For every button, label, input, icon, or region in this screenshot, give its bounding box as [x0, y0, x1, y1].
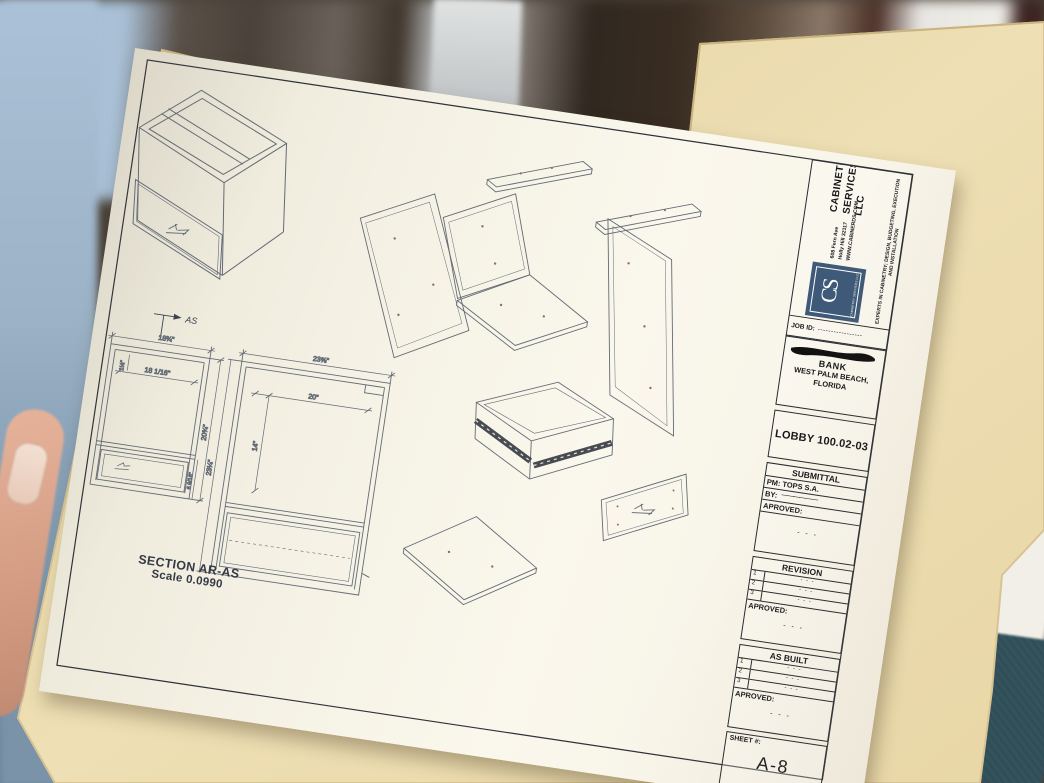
project-box: BANK WEST PALM BEACH, FLORIDA — [775, 335, 886, 419]
exploded-top-rail-1 — [486, 148, 593, 206]
revision-box: REVISION 1 - - - 2 - - - 3 - - - APROVED… — [740, 556, 853, 654]
dim-right-inner-height: 14" — [252, 440, 261, 452]
location-code: LOBBY 100.02-03 — [774, 428, 869, 454]
cs-logo: CS CABINETRY SERVICES LLC — [805, 262, 866, 323]
exploded-drawer-front — [595, 462, 694, 552]
iso-cabinet-view — [119, 82, 302, 287]
job-id-value: ----------------- — [817, 326, 863, 340]
drawer-logo-mark-small — [115, 462, 131, 471]
company-address: 608 Fern Ave Holly Hill 32117 WWW.CABINE… — [828, 216, 859, 261]
submittal-box: SUBMITTAL PM: TOPS S.A. BY: —————— APROV… — [753, 462, 867, 566]
exploded-drawer-box — [466, 371, 621, 491]
as-built-box: AS BUILT 1 - - - 2 - - - 3 - - - APROVED… — [727, 644, 840, 742]
job-id-label: JOB ID: — [791, 322, 816, 332]
submittal-by-label: BY: — [764, 489, 778, 500]
drawer-front-logo-mark — [632, 503, 655, 516]
exploded-deck-panel — [451, 265, 593, 361]
exploded-parts-view — [306, 130, 737, 635]
section-marker-label: AS — [184, 314, 198, 326]
company-name: CABINETRY SERVICES LLC — [829, 159, 875, 217]
dim-left-top-reveal: 1½" — [118, 360, 126, 371]
sheet-number-value: A-8 — [725, 748, 821, 783]
dim-right-inner-width: 20" — [308, 393, 320, 402]
thumb-nail — [4, 440, 51, 508]
exploded-top-rail-2 — [595, 190, 702, 248]
dim-left-inner-width: 18 1/16" — [144, 367, 171, 378]
exploded-side-panel-left — [341, 184, 488, 368]
photo-scene: AS 18¾" 18 1/16" — [0, 0, 1044, 783]
company-rotated-content: CS CABINETRY SERVICES LLC 608 Fern Ave H… — [789, 160, 909, 330]
section-view-right: 23⅝" 20" 14" 23¼" — [191, 343, 400, 597]
drawer-front-logo-mark — [166, 223, 189, 236]
drawing-sheet: AS 18¾" 18 1/16" — [39, 48, 956, 783]
exploded-side-panel-right — [578, 219, 704, 436]
exploded-bottom-panel — [397, 507, 543, 615]
